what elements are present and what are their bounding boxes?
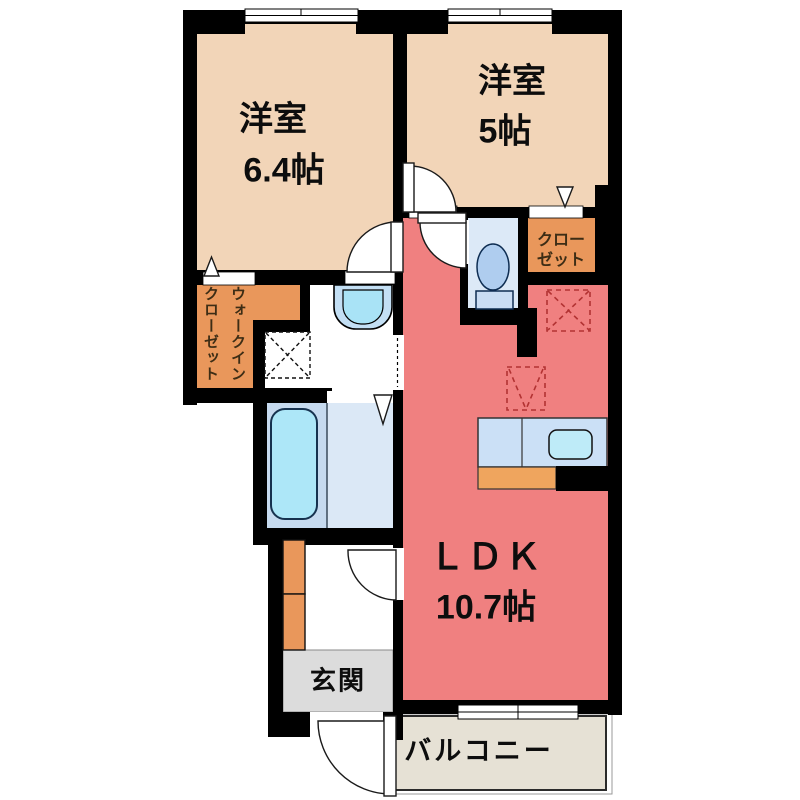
washbasin [334,285,392,329]
entrance-label: 玄関 [310,667,366,696]
bedroom1-name: 洋室 [239,101,307,138]
ldk-name: ＬＤＫ [429,537,543,577]
toilet-door-leaf [418,213,466,223]
bathroom [267,403,393,528]
entrance-door-leaf [384,716,396,796]
kitchen-sink [549,430,592,459]
washing-machine-space [265,332,310,378]
shoe-cabinet [283,540,305,650]
ldk-size: 10.7帖 [436,589,536,626]
bedroom2-door-leaf [403,163,414,212]
bedroom1-size: 6.4帖 [243,152,324,189]
bathtub [271,409,317,519]
wic-label: ウォークインクローゼット [197,286,251,390]
window-bedroom1 [245,9,358,22]
kitchen-wall-block [556,466,608,491]
floor-plan-drawing [0,0,800,800]
bedroom2-size: 5帖 [479,113,532,150]
floor-plan: 洋室 6.4帖 洋室 5帖 ＬＤＫ 10.7帖 玄関 バルコニー クロー ゼット… [0,0,800,800]
kitchen-unit [478,418,608,491]
closet-opening [529,206,583,218]
balcony-label: バルコニー [404,737,553,767]
window-bedroom2 [448,9,552,22]
hall-door-arc [348,550,396,600]
bedroom1-door-opening [345,271,395,284]
closet-label: クロー ゼット [537,231,585,271]
bedroom1-door-leaf [391,222,403,272]
window-balcony [458,705,578,719]
bedroom2-name: 洋室 [478,63,546,100]
entrance-door-arc [318,721,391,794]
kitchen-cabinet [478,467,556,489]
